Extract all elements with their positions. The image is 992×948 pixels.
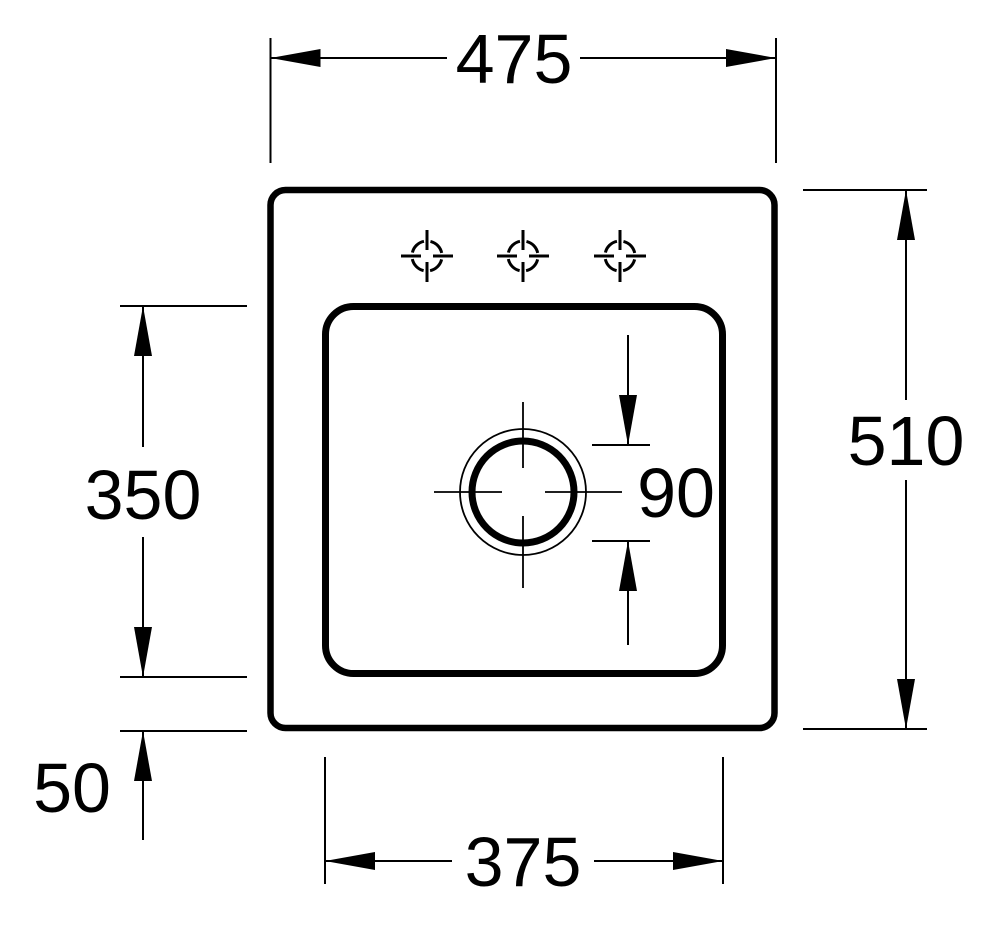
arrowhead-right	[673, 852, 723, 870]
dim-basin-offset: 50	[33, 731, 247, 840]
arrowhead-top	[134, 306, 152, 356]
arrowhead-top	[897, 190, 915, 240]
dim-basin-width: 375	[325, 757, 723, 901]
technical-drawing-canvas: 475 510 350 50 375 90	[0, 0, 992, 948]
arrowhead-left	[271, 49, 321, 67]
dim-drain-diameter: 90	[592, 335, 715, 645]
dim-label-drain-diameter: 90	[637, 454, 715, 532]
arrowhead-up	[619, 541, 637, 591]
arrowhead-bottom	[897, 679, 915, 729]
dim-overall-width: 475	[271, 20, 777, 163]
arrowhead-up	[134, 731, 152, 781]
faucet-hole-marker-icon-3	[594, 230, 646, 282]
dim-label-overall-depth: 510	[848, 402, 965, 480]
dim-label-basin-offset: 50	[33, 749, 111, 827]
dim-label-basin-depth: 350	[85, 456, 202, 534]
dim-label-overall-width: 475	[456, 20, 573, 98]
faucet-hole-marker-icon-2	[497, 230, 549, 282]
dim-basin-depth: 350	[85, 306, 247, 677]
faucet-hole-marker-icon-1	[401, 230, 453, 282]
dim-overall-depth: 510	[803, 190, 964, 729]
arrowhead-left	[325, 852, 375, 870]
dim-label-basin-width: 375	[465, 823, 582, 901]
arrowhead-bottom	[134, 627, 152, 677]
arrowhead-right	[726, 49, 776, 67]
drain-marker	[434, 402, 622, 588]
arrowhead-down	[619, 395, 637, 445]
sink-technical-drawing: 475 510 350 50 375 90	[0, 0, 992, 948]
